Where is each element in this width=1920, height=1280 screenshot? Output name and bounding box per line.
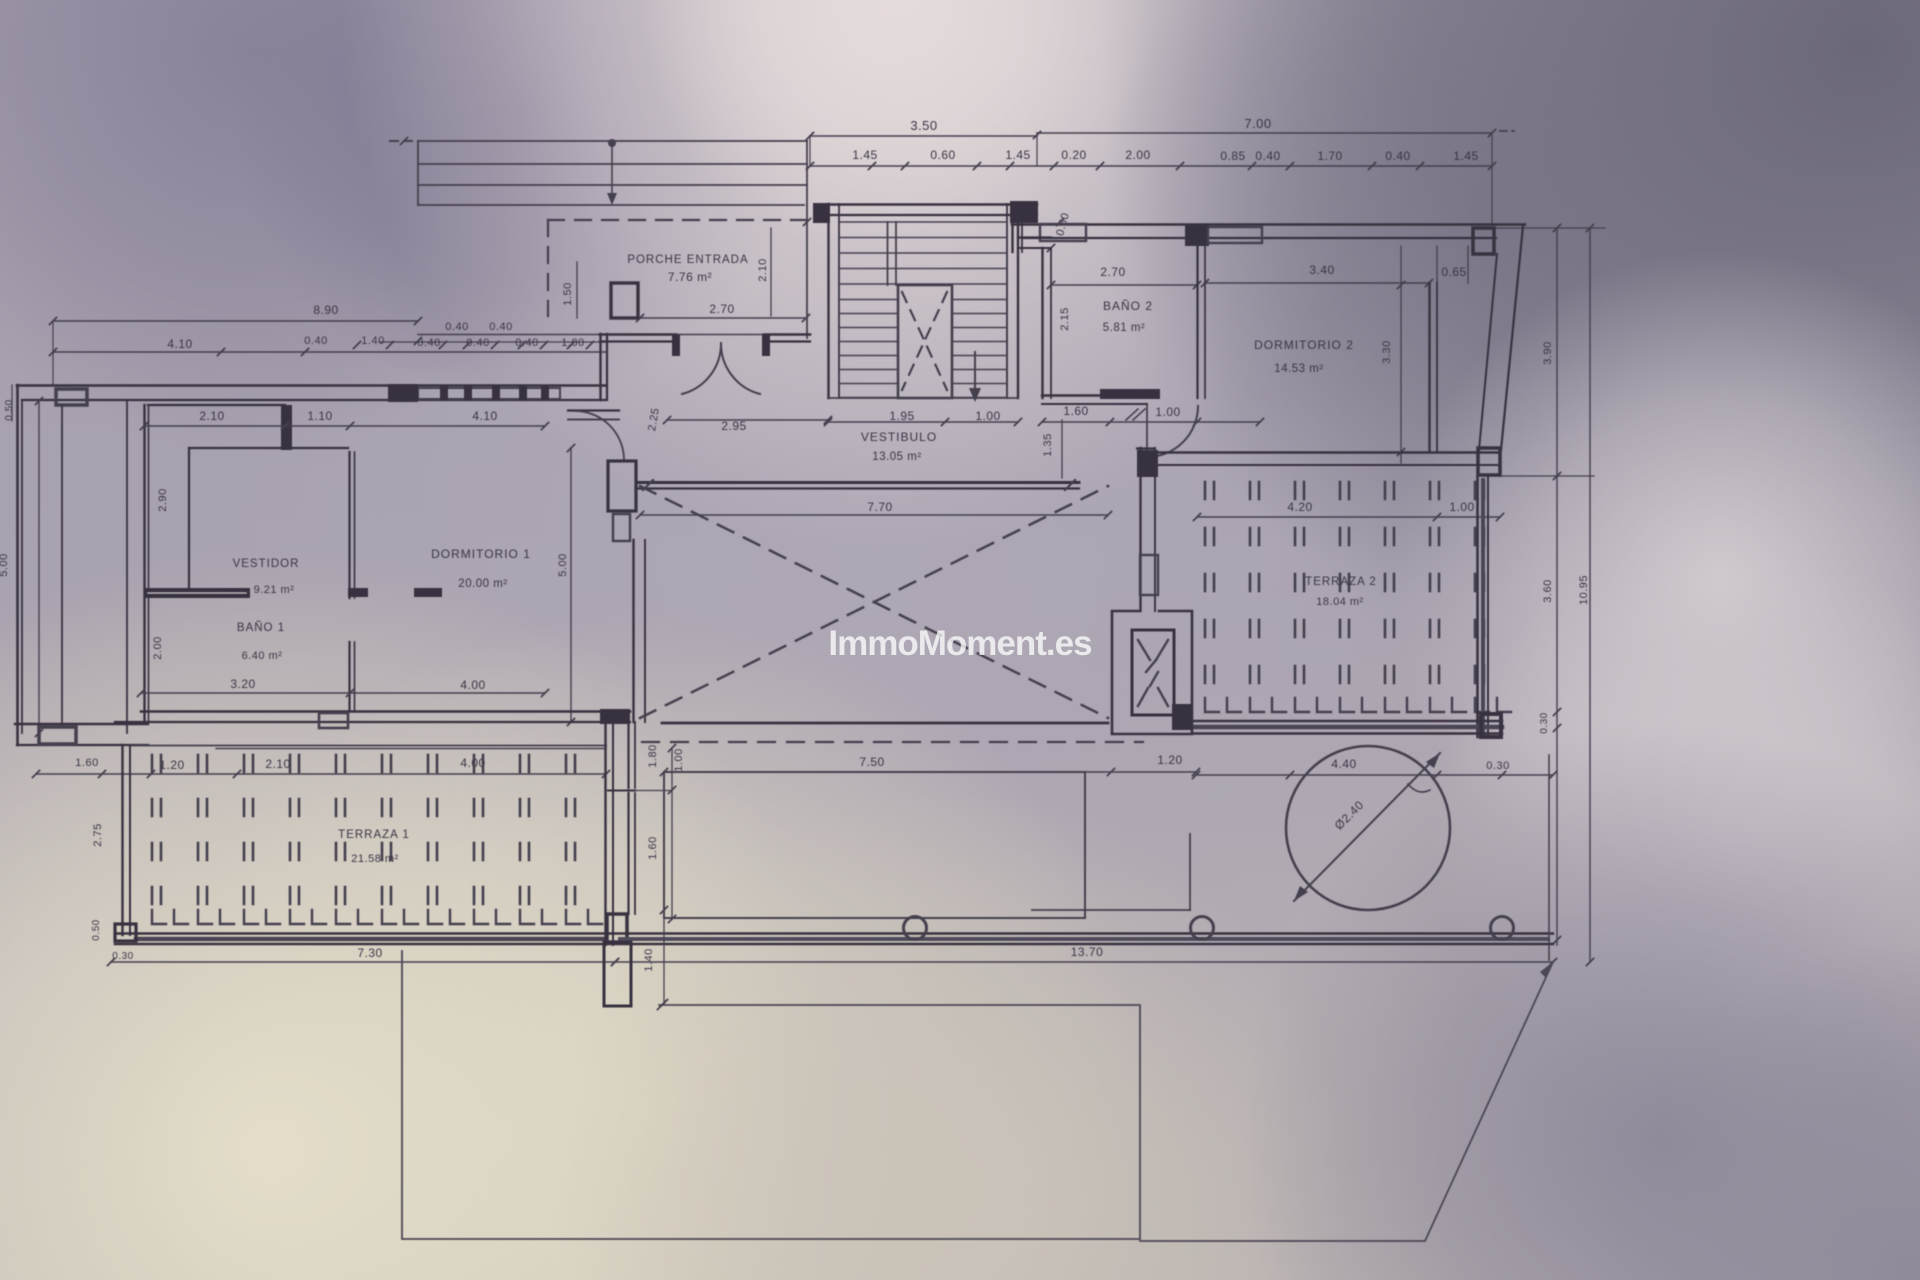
svg-text:BAÑO 2: BAÑO 2 [1103,299,1153,313]
svg-text:1.50: 1.50 [562,282,574,305]
svg-text:1.45: 1.45 [852,148,877,162]
svg-text:0.20: 0.20 [1061,148,1086,162]
svg-text:13.70: 13.70 [1071,945,1104,959]
svg-text:2.00: 2.00 [1125,148,1150,162]
svg-text:4.10: 4.10 [167,337,192,351]
svg-text:0.40: 0.40 [466,337,489,349]
svg-text:4.20: 4.20 [1287,500,1312,514]
svg-text:1.40: 1.40 [643,948,655,971]
svg-text:2.75: 2.75 [92,823,104,846]
svg-text:1.00: 1.00 [673,748,685,771]
svg-text:0.60: 0.60 [930,148,955,162]
svg-text:0.40: 0.40 [515,337,538,349]
svg-text:0.30: 0.30 [1486,760,1509,772]
svg-text:1.60: 1.60 [647,836,659,859]
svg-text:0.50: 0.50 [91,919,102,940]
svg-text:1.10: 1.10 [307,409,332,423]
svg-text:0.40: 0.40 [489,321,512,333]
svg-text:TERRAZA 1: TERRAZA 1 [338,829,410,841]
svg-text:20.00 m²: 20.00 m² [458,578,507,590]
svg-text:1.80: 1.80 [647,744,659,767]
svg-text:9.21 m²: 9.21 m² [254,584,295,596]
svg-text:0.30: 0.30 [112,951,133,962]
svg-text:3.90: 3.90 [1542,341,1554,364]
svg-text:1.70: 1.70 [1317,149,1342,163]
svg-text:1.00: 1.00 [1449,500,1474,514]
svg-text:3.20: 3.20 [230,677,255,691]
svg-text:10.95: 10.95 [1578,575,1590,605]
svg-text:2.70: 2.70 [1100,265,1125,279]
svg-text:8.90: 8.90 [313,303,338,317]
svg-text:2.70: 2.70 [709,302,734,316]
svg-text:0.40: 0.40 [304,335,327,347]
svg-text:1.40: 1.40 [361,335,384,347]
svg-text:0.85: 0.85 [1220,149,1245,163]
svg-text:3.40: 3.40 [1309,263,1334,277]
svg-text:2.95: 2.95 [721,419,746,433]
svg-text:1.20: 1.20 [159,758,184,772]
svg-text:4.40: 4.40 [1331,757,1356,771]
svg-text:1.00: 1.00 [975,409,1000,423]
svg-text:VESTIDOR: VESTIDOR [233,558,300,570]
svg-text:1.95: 1.95 [889,409,914,423]
svg-text:3.60: 3.60 [1542,579,1554,602]
svg-text:2.00: 2.00 [152,636,164,659]
svg-text:7.70: 7.70 [867,500,892,514]
svg-text:5.00: 5.00 [0,553,10,576]
svg-text:7.50: 7.50 [859,755,884,769]
svg-text:13.05 m²: 13.05 m² [872,451,921,463]
svg-text:7.76 m²: 7.76 m² [668,270,712,284]
svg-text:0.40: 0.40 [1255,149,1280,163]
svg-text:1.00: 1.00 [1155,405,1180,419]
svg-text:5.00: 5.00 [557,553,569,576]
svg-text:0.40: 0.40 [1385,149,1410,163]
svg-text:4.00: 4.00 [460,678,485,692]
svg-text:2.90: 2.90 [157,488,169,511]
svg-text:6.40 m²: 6.40 m² [242,650,283,662]
svg-text:1.35: 1.35 [1042,433,1054,456]
svg-text:DORMITORIO 1: DORMITORIO 1 [431,547,531,561]
svg-text:3.30: 3.30 [1381,340,1393,363]
svg-text:4.10: 4.10 [472,409,497,423]
svg-text:1.45: 1.45 [1453,149,1478,163]
svg-text:21.58 m²: 21.58 m² [351,853,398,865]
svg-text:0.40: 0.40 [445,321,468,333]
svg-text:0.30: 0.30 [1539,712,1550,733]
svg-text:0.40: 0.40 [417,337,440,349]
svg-text:14.53 m²: 14.53 m² [1274,363,1323,375]
svg-text:2.10: 2.10 [757,258,769,281]
svg-text:1.60: 1.60 [75,757,98,769]
svg-text:1.60: 1.60 [1063,404,1088,418]
svg-text:BAÑO 1: BAÑO 1 [237,621,285,634]
svg-text:2.15: 2.15 [1059,307,1071,330]
svg-text:DORMITORIO 2: DORMITORIO 2 [1254,338,1354,352]
svg-text:7.00: 7.00 [1244,116,1271,131]
svg-text:0.65: 0.65 [1441,265,1466,279]
svg-text:2.10: 2.10 [199,409,224,423]
svg-text:PORCHE ENTRADA: PORCHE ENTRADA [627,254,748,266]
svg-text:TERRAZA 2: TERRAZA 2 [1305,576,1377,588]
svg-text:1.20: 1.20 [1157,753,1182,767]
svg-text:0.50: 0.50 [4,399,15,420]
svg-text:1.00: 1.00 [561,337,584,349]
svg-text:3.50: 3.50 [910,118,937,133]
svg-text:1.45: 1.45 [1005,148,1030,162]
svg-text:7.30: 7.30 [357,946,382,960]
svg-text:18.04 m²: 18.04 m² [1316,596,1363,608]
svg-text:ImmoMoment.es: ImmoMoment.es [828,624,1092,663]
svg-text:5.81 m²: 5.81 m² [1103,322,1146,334]
svg-text:2.10: 2.10 [265,757,290,771]
svg-text:VESTIBULO: VESTIBULO [861,430,937,444]
